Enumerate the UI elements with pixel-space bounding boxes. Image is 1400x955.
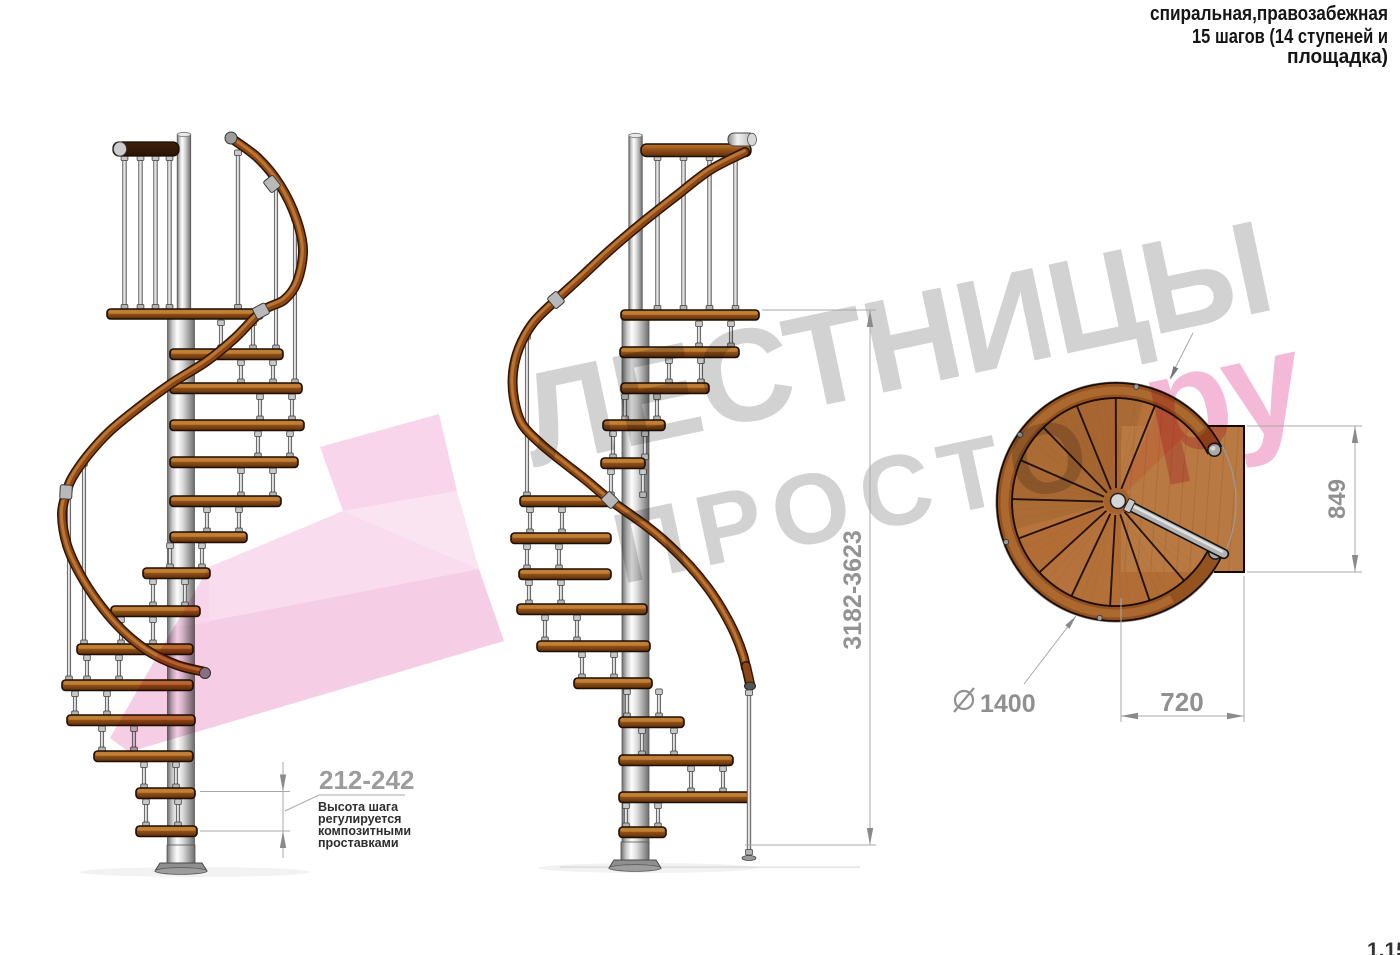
svg-text:1.15: 1.15 — [1367, 939, 1400, 955]
svg-text:849: 849 — [1324, 479, 1351, 519]
svg-text:площадка): площадка) — [1287, 46, 1388, 68]
svg-text:720: 720 — [1160, 687, 1203, 717]
svg-text:3182-3623: 3182-3623 — [839, 530, 867, 650]
svg-text:15 шагов (14 ступеней и: 15 шагов (14 ступеней и — [1192, 26, 1388, 48]
svg-text:212-242: 212-242 — [319, 765, 414, 795]
svg-text:проставками: проставками — [318, 836, 399, 850]
svg-text:спиральная,правозабежная: спиральная,правозабежная — [1150, 3, 1388, 25]
svg-text:1400: 1400 — [980, 690, 1036, 718]
